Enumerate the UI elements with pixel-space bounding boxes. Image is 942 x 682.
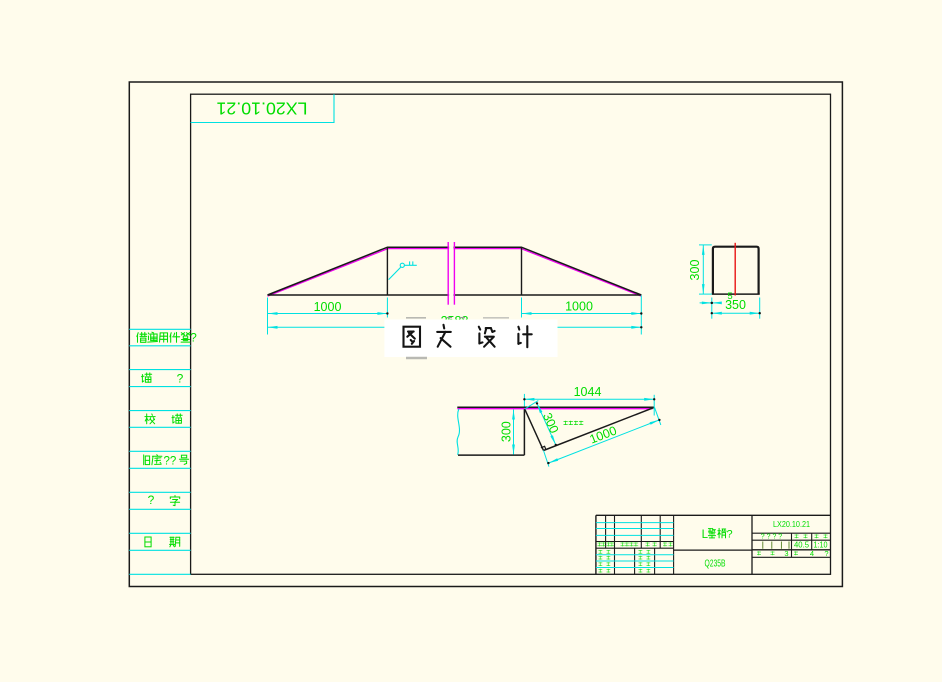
svg-text:Q235B: Q235B <box>705 558 726 570</box>
svg-text:?: ? <box>824 549 828 558</box>
svg-text:4: 4 <box>810 549 814 558</box>
svg-text:?: ? <box>726 529 732 541</box>
svg-text:1000: 1000 <box>314 300 342 314</box>
svg-text:L: L <box>702 529 709 541</box>
svg-text:LX20.10.21: LX20.10.21 <box>217 99 308 119</box>
svg-text:?: ? <box>148 493 155 507</box>
svg-text:? ? ? ?: ? ? ? ? <box>761 533 783 540</box>
svg-text:??: ?? <box>164 455 177 467</box>
svg-text:300: 300 <box>688 260 702 281</box>
svg-text:3: 3 <box>784 549 788 558</box>
svg-text:1044: 1044 <box>574 385 602 399</box>
svg-text:LX20.10.21: LX20.10.21 <box>773 519 810 529</box>
svg-text:300: 300 <box>500 421 514 442</box>
svg-text:?: ? <box>177 372 184 386</box>
svg-text:5: 5 <box>727 291 732 302</box>
svg-text:1000: 1000 <box>565 300 593 314</box>
svg-text:40.5: 40.5 <box>794 541 810 550</box>
svg-text:?: ? <box>190 331 197 345</box>
